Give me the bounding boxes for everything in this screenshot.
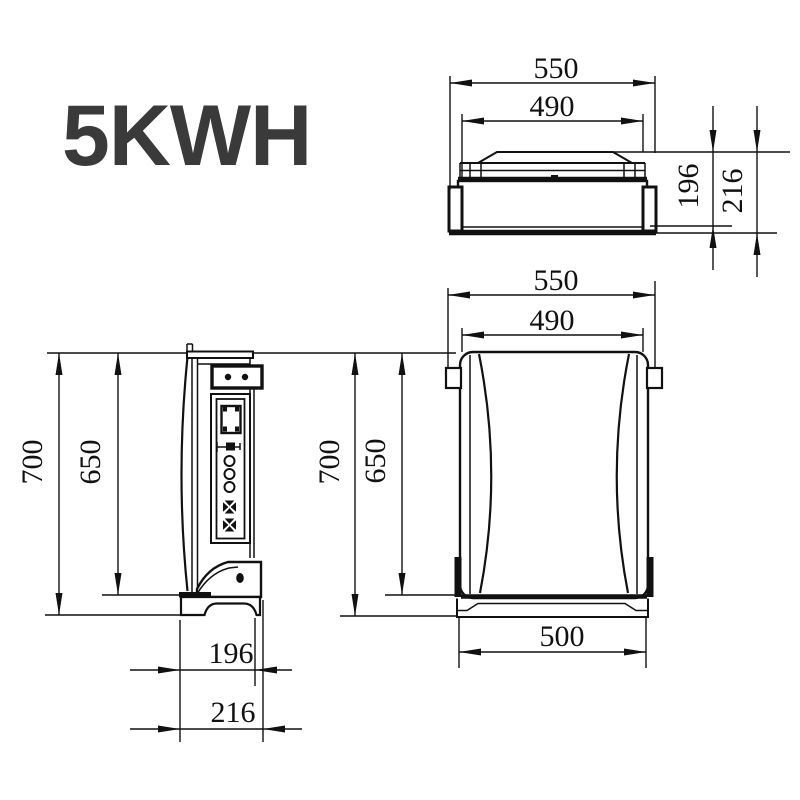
right-tab [647,368,662,388]
base-inner-profile [457,604,648,611]
arrowhead-top [710,130,717,152]
dim-front-base-width: 500 [459,617,646,668]
left-flange [449,187,462,231]
dim-front-height-total: 700 [313,353,457,616]
arrowhead-right [633,80,655,87]
dimension-lines [385,353,458,595]
dim-label: 700 [313,440,346,485]
arrowhead-top [115,353,122,375]
bracket-hole-icon [242,374,248,380]
switch-knob [226,443,235,451]
main-body-outline [458,181,647,231]
connector-port-icon [225,482,235,492]
arrowhead-bottom [754,233,761,255]
dimension-lines [340,353,457,616]
top-plate [187,352,253,359]
base-outline [457,599,648,618]
right-flange [643,187,656,231]
page-title: 5KWH [62,88,311,184]
dim-front-height-body: 650 [359,353,458,595]
dimension-lines [102,353,203,595]
dim-label: 500 [540,620,585,653]
dimension-lines [45,353,181,615]
dim-label: 216 [716,169,749,214]
arrowhead-left [448,292,470,299]
arrowhead-bottom [115,573,122,595]
mount-bracket [212,366,262,388]
drawing-canvas: 5KWH 550 490 [0,0,800,800]
arrowhead-top [352,353,359,375]
arrowhead-right [624,649,646,656]
left-tab [446,368,461,388]
dim-label: 650 [74,440,107,485]
connector-port-icon [225,456,235,466]
dim-front-width-inner: 490 [462,304,643,352]
arrowhead-top [56,353,63,375]
top-view: 550 490 196 216 [449,52,790,277]
arrowhead-right [621,118,643,125]
dim-label: 490 [530,304,575,337]
lid-trapezoid [478,152,632,163]
arrowhead-right [263,726,285,733]
front-face-arc [182,357,188,591]
right-bottom-rail [647,557,654,597]
body-outline [460,352,648,598]
dim-top-width-inner: 490 [462,90,643,180]
dim-label: 196 [209,637,254,670]
connector-port-icon [225,469,235,479]
arrowhead-right [255,667,277,674]
arrowhead-left [158,667,180,674]
arrowhead-top [754,130,761,152]
bracket-slot [236,573,244,583]
arrowhead-right [633,292,655,299]
arrowhead-bottom [56,593,63,615]
dim-label: 550 [534,264,579,297]
foot-with-arch [181,597,260,615]
dim-label: 196 [672,164,705,209]
arrowhead-right [621,332,643,339]
arrowhead-left [459,649,481,656]
dim-label: 490 [530,90,575,123]
arrowhead-bottom [399,573,406,595]
dim-label: 550 [534,52,579,85]
arrowhead-left [158,726,180,733]
left-bottom-rail [455,557,462,597]
arrowhead-top [399,353,406,375]
bracket-hole-icon [225,374,231,380]
arrowhead-left [462,332,484,339]
arrowhead-bottom [710,226,717,248]
dim-label: 650 [359,439,392,484]
top-stub [187,344,193,352]
top-view-object [449,152,656,233]
technical-drawing: 5KWH 550 490 [0,0,800,800]
side-view: 700 650 196 216 [16,344,302,742]
dim-label: 700 [16,440,49,485]
front-view: 550 490 700 650 500 [313,264,662,668]
front-face-lines [192,353,198,595]
arrowhead-left [450,80,472,87]
arrowhead-bottom [352,594,359,616]
front-view-object [446,352,662,617]
dim-label: 216 [211,696,256,729]
side-view-object [179,344,262,615]
arrowhead-left [462,118,484,125]
